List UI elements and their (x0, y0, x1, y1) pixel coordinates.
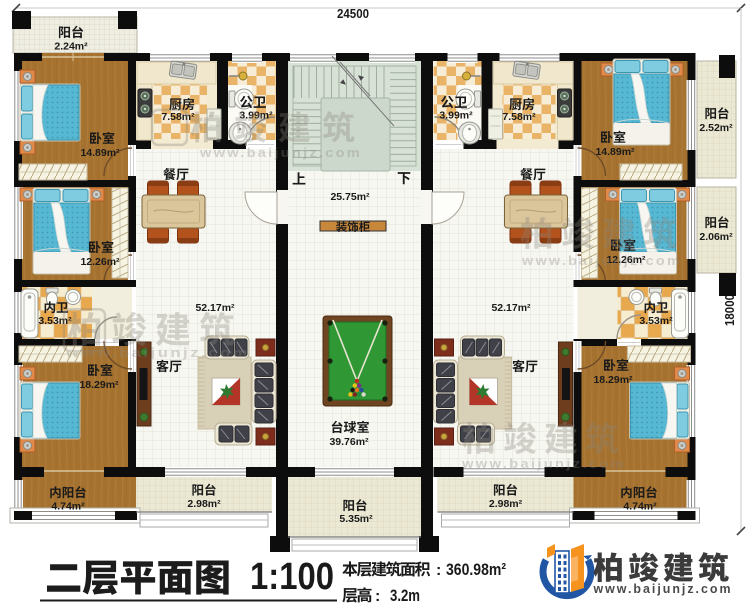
svg-text:14.89m²: 14.89m² (80, 147, 120, 159)
svg-text:3.2m: 3.2m (390, 586, 420, 605)
svg-text:2.24m²: 2.24m² (54, 41, 88, 53)
svg-text::: : (375, 588, 380, 605)
svg-text:360.98m²: 360.98m² (446, 560, 506, 579)
svg-text:14.89m²: 14.89m² (595, 146, 635, 158)
svg-text:18.29m²: 18.29m² (593, 374, 633, 386)
svg-text:52.17m²: 52.17m² (491, 302, 531, 314)
svg-text:2.98m²: 2.98m² (187, 498, 221, 510)
svg-text:3.53m²: 3.53m² (38, 315, 72, 327)
svg-text:4.74m²: 4.74m² (51, 501, 85, 513)
svg-text:7.58m²: 7.58m² (502, 111, 536, 123)
svg-text:24500: 24500 (337, 6, 369, 21)
svg-text:7.58m²: 7.58m² (161, 111, 195, 123)
svg-text:4.74m²: 4.74m² (623, 501, 657, 513)
svg-text::: : (436, 562, 441, 579)
svg-text:25.75m²: 25.75m² (330, 191, 370, 203)
svg-text:12.26m²: 12.26m² (80, 256, 120, 268)
svg-text:www.baijunjz.com: www.baijunjz.com (593, 582, 733, 596)
svg-text:www.baijunjz.com: www.baijunjz.com (65, 345, 250, 360)
svg-text:www.baijunjz.com: www.baijunjz.com (199, 145, 362, 160)
svg-text:1:100: 1:100 (250, 556, 334, 598)
svg-text:18000: 18000 (722, 294, 737, 326)
svg-text:5.35m²: 5.35m² (339, 513, 373, 525)
svg-text:2.06m²: 2.06m² (699, 231, 733, 243)
svg-text:18.29m²: 18.29m² (79, 379, 119, 391)
svg-text:2.98m²: 2.98m² (489, 498, 523, 510)
svg-text:2.52m²: 2.52m² (699, 122, 733, 134)
svg-text:www.baijunjz.com: www.baijunjz.com (461, 456, 626, 471)
svg-text:www.baijunjz.com: www.baijunjz.com (521, 253, 682, 268)
svg-text:3.99m²: 3.99m² (439, 110, 473, 122)
svg-text:39.76m²: 39.76m² (329, 436, 369, 448)
svg-text:52.17m²: 52.17m² (195, 302, 235, 314)
svg-text:3.53m²: 3.53m² (639, 315, 673, 327)
